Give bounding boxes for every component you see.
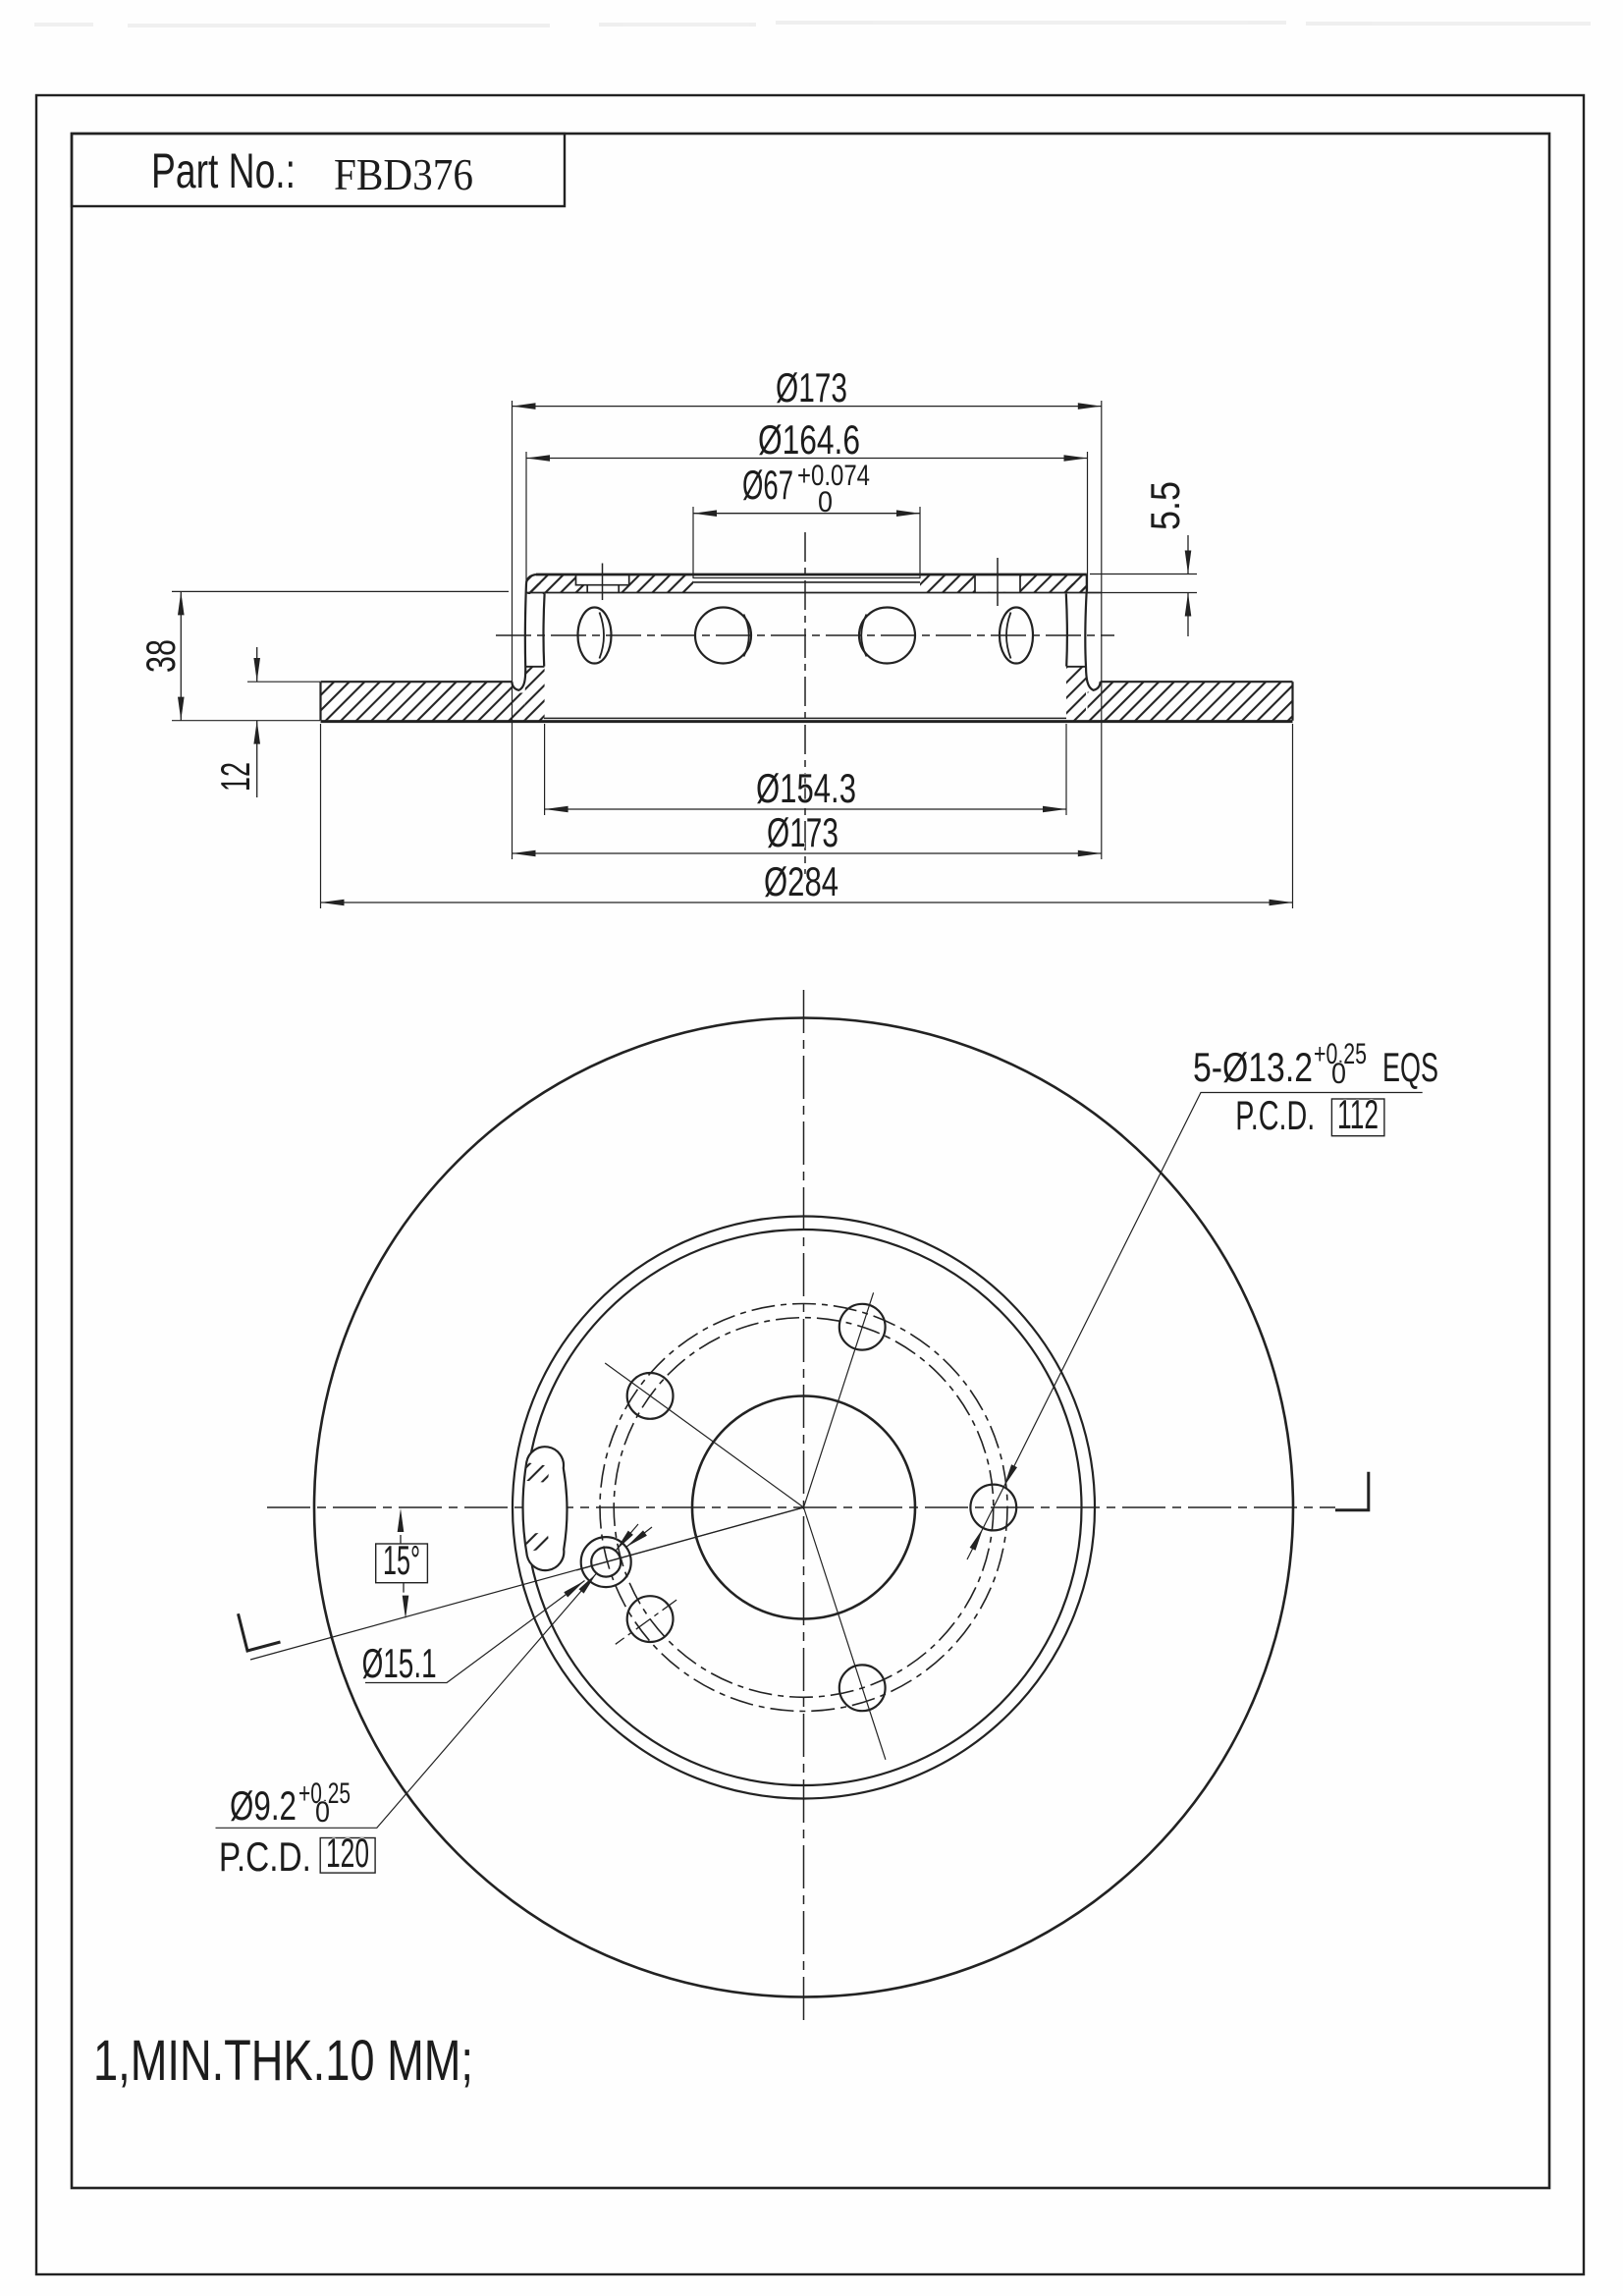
- svg-text:15°: 15°: [383, 1537, 420, 1583]
- svg-text:Ø9.2: Ø9.2: [230, 1782, 297, 1829]
- svg-text:Ø154.3: Ø154.3: [756, 765, 856, 811]
- svg-text:P.C.D.: P.C.D.: [219, 1833, 311, 1880]
- svg-text:120: 120: [326, 1830, 369, 1876]
- svg-text:112: 112: [1337, 1091, 1379, 1137]
- svg-text:Part No.:: Part No.:: [151, 143, 296, 198]
- svg-text:38: 38: [137, 639, 184, 673]
- svg-text:0: 0: [315, 1796, 330, 1829]
- svg-text:0: 0: [1331, 1058, 1346, 1090]
- svg-text:5-Ø13.2: 5-Ø13.2: [1193, 1044, 1313, 1090]
- svg-text:P.C.D.: P.C.D.: [1235, 1092, 1315, 1138]
- svg-text:+0.074: +0.074: [797, 460, 870, 492]
- svg-text:Ø284: Ø284: [764, 858, 839, 904]
- svg-text:1,MIN.THK.10 MM;: 1,MIN.THK.10 MM;: [93, 2029, 473, 2093]
- svg-text:FBD376: FBD376: [334, 149, 473, 199]
- svg-text:12: 12: [212, 762, 258, 792]
- svg-text:Ø164.6: Ø164.6: [758, 416, 860, 463]
- svg-text:Ø173: Ø173: [776, 364, 847, 410]
- svg-text:5.5: 5.5: [1142, 481, 1188, 530]
- svg-text:0: 0: [818, 486, 833, 519]
- svg-text:Ø173: Ø173: [767, 809, 839, 855]
- svg-text:Ø67: Ø67: [742, 462, 793, 508]
- svg-text:EQS: EQS: [1382, 1044, 1438, 1090]
- svg-text:Ø15.1: Ø15.1: [362, 1640, 437, 1686]
